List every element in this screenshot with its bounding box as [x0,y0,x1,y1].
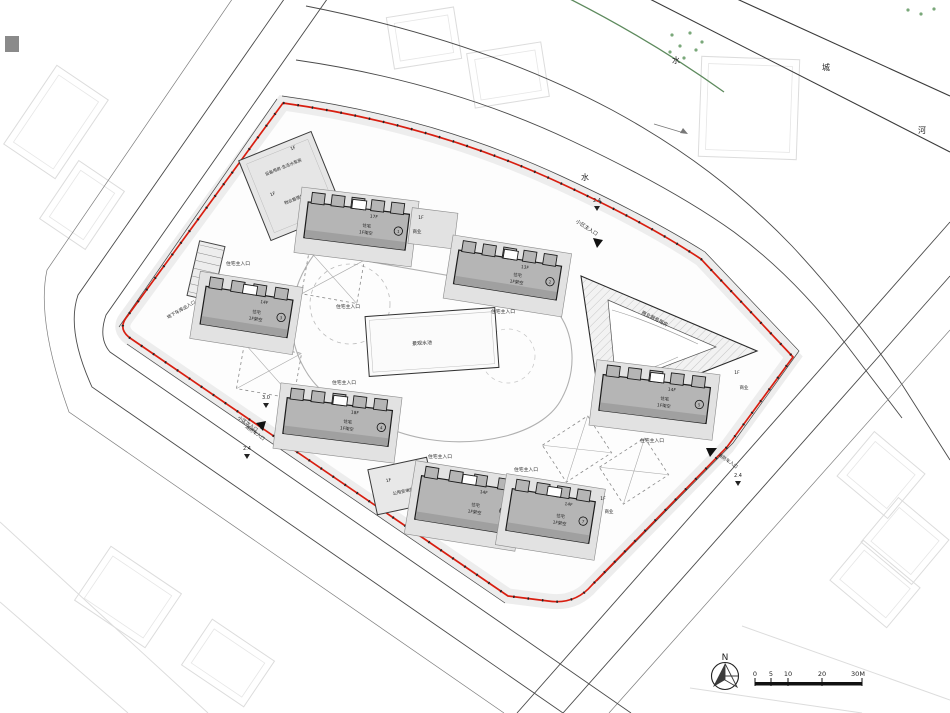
context-building-7 [861,498,949,585]
context-building-10 [182,619,275,707]
river-char-cheng: 城 [822,63,830,72]
context-building-3 [386,7,461,69]
dim-24-top: 2.4 [593,198,601,204]
dim-24-se: 2.4 [734,473,742,479]
site-plan-page: 水 水 城 河 景观水池 商业服务用房 1F 设备用房 [0,0,950,713]
podium2-1f: 1F [734,370,740,376]
riverside-trees [668,7,935,59]
river-green-bank-line [560,0,724,92]
context-building-6 [837,432,925,519]
river-char-shui: 水 [672,55,680,65]
res-entrance-1: 住宅主入口 [336,303,360,310]
river-bank-north [726,0,950,96]
context-building-1 [4,65,109,178]
res-entrance-4: 住宅主入口 [332,379,356,386]
context-building-5 [698,56,799,159]
dim-24-se-arrow [735,481,741,486]
building-4-floors-label: 18F [351,410,360,417]
context-building-2 [40,161,125,250]
res-entrance-2: 住宅主入口 [491,308,515,315]
context-building-9 [75,546,182,647]
dim-24-sw: 2.4 [243,446,251,452]
dim-24-sw-arrow [244,454,250,459]
building-1-commercial-podium [408,208,458,249]
scale-20: 20 [818,670,826,678]
tree-dot-6 [700,40,703,43]
tree-dot-1 [670,33,673,36]
scale-10: 10 [784,670,792,678]
res-entrance-3: 住宅主入口 [226,260,250,267]
river-char-he: 河 [918,125,926,135]
tree-dot-10 [932,7,935,10]
north-needle-outline [725,664,739,688]
dim-30: 3.0 [262,395,270,401]
res-entrance-6: 住宅主入口 [428,453,452,460]
landscape-pool: 景观水池 [365,308,499,377]
building-7: 14F住宅1F架空7 [495,474,605,561]
pool-label: 景观水池 [412,339,432,347]
scale-bar: 0 5 10 20 30M [753,670,865,686]
res-entrance-7: 住宅主入口 [514,466,538,473]
tree-dot-8 [906,8,909,11]
podium2-commercial: 商业 [740,384,749,391]
river: 水 水 城 河 [560,0,950,182]
river-bank-south [640,0,950,152]
flow-arrow-line [654,124,684,133]
tree-dot-4 [694,48,697,51]
context-lines-bottom-left [0,522,208,713]
scale-0: 0 [753,670,757,678]
podium1-commercial: 商业 [413,228,422,235]
scale-30m: 30M [851,670,865,678]
north-label: N [722,653,729,663]
podium3-1f: 1F [600,496,606,502]
north-arrow: N [712,653,740,690]
podium3-commercial: 商业 [605,508,614,515]
river-char-shui-2: 水 [581,172,589,182]
building-5-floors-label: 14F [668,387,677,394]
tree-dot-2 [678,44,681,47]
flow-arrow-head [680,128,688,134]
tree-dot-5 [682,56,685,59]
tree-dot-9 [919,12,922,15]
building-1-floors-label: 17F [370,214,379,221]
tree-dot-7 [668,50,671,53]
res-entrance-5: 住宅主入口 [640,437,664,444]
scale-5: 5 [769,670,773,678]
context-small-building [5,36,19,52]
podium1-1f: 1F [418,215,424,221]
tree-dot-3 [688,31,691,34]
site-plan-svg: 水 水 城 河 景观水池 商业服务用房 1F 设备用房 [0,0,950,713]
